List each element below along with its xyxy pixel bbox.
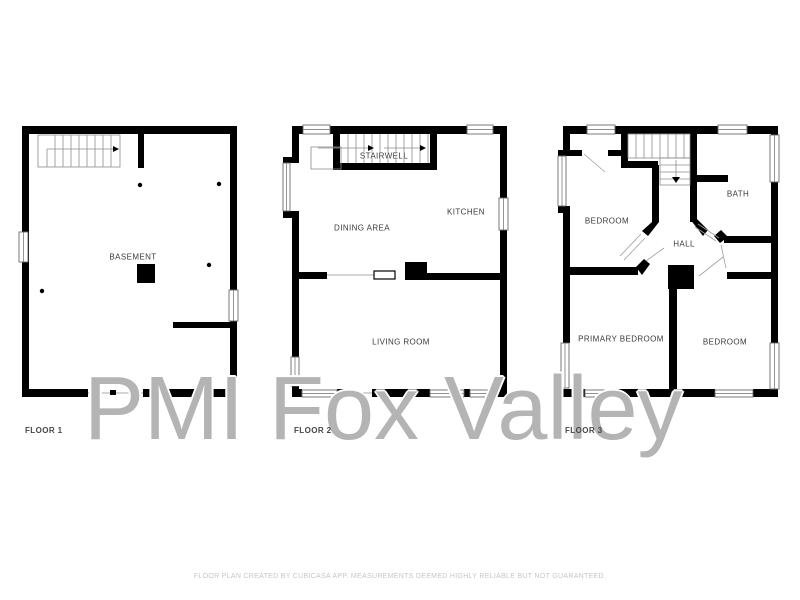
- f1-post: [138, 183, 142, 187]
- f3-stair-wall-right: [690, 127, 697, 222]
- f1-wall-bottom-left: [22, 389, 88, 397]
- f3-bath-wall-stub: [697, 175, 728, 182]
- f1-furnace: [137, 264, 155, 283]
- f1-post: [40, 289, 44, 293]
- f1-post: [207, 263, 211, 267]
- room-label-hall: HALL: [673, 240, 695, 249]
- footer-disclaimer: FLOOR PLAN CREATED BY CUBICASA APP. MEAS…: [0, 573, 800, 580]
- f3-primary-north-wall: [570, 267, 638, 275]
- room-label-living-room: LIVING ROOM: [372, 338, 430, 347]
- f1-interior-wall-stub: [138, 133, 144, 168]
- f3-window-left-upper: [558, 156, 566, 206]
- f2-wall-jog-top: [283, 157, 299, 163]
- room-label-dining-area: DINING AREA: [334, 224, 390, 233]
- f3-closet-south-wall: [727, 272, 772, 279]
- floor-plan-drawing: [0, 0, 800, 600]
- f1-window-right: [229, 290, 238, 321]
- f3-window-top-2: [718, 125, 747, 134]
- f2-window-top-2: [467, 125, 493, 134]
- f3-window-right-lower: [770, 343, 779, 389]
- f1-stairs-arrow: [113, 146, 119, 152]
- room-label-bath: BATH: [727, 190, 749, 199]
- room-label-basement: BASEMENT: [109, 253, 156, 262]
- floor2-plan: [283, 125, 508, 397]
- floor1-plan: [19, 126, 238, 397]
- room-label-bedroom-1: BEDROOM: [585, 217, 629, 226]
- f3-wall-bottom: [753, 389, 778, 397]
- f3-bedroom-north-wall: [558, 150, 582, 156]
- f2-window-top-1: [303, 125, 330, 134]
- f3-wall-left-mid: [563, 213, 570, 343]
- room-label-bedroom-2: BEDROOM: [703, 338, 747, 347]
- f3-wall-jog: [558, 206, 570, 213]
- f3-angled-wall-4: [636, 259, 650, 275]
- f3-stairs-down-arrow: [672, 177, 680, 183]
- f1-stairs: [38, 135, 120, 167]
- f2-chimney: [405, 262, 427, 280]
- f2-stairs-arrow-2: [420, 145, 426, 151]
- f1-wall-top: [22, 126, 237, 134]
- floor3-label: FLOOR 3: [565, 426, 602, 435]
- floor2-label: FLOOR 2: [294, 426, 331, 435]
- f2-window-left-upper: [283, 163, 290, 211]
- room-label-kitchen: KITCHEN: [447, 208, 485, 217]
- floor-plan-page: PMI Fox Valley BASEMENT STAIRWELL DINING…: [0, 0, 800, 600]
- f3-hall-wall-left: [652, 165, 659, 222]
- f2-divider-wall: [299, 262, 502, 280]
- floor1-label: FLOOR 1: [25, 426, 62, 435]
- f1-window-left: [19, 232, 28, 262]
- f2-wall-right: [500, 126, 507, 397]
- room-label-stairwell: STAIRWELL: [360, 152, 408, 161]
- f3-window-top-1: [587, 125, 615, 134]
- f1-wall-right: [230, 126, 237, 397]
- f3-bath-south-wall: [724, 236, 772, 243]
- f3-bedroom-north-wall-2: [608, 150, 622, 156]
- f3-window-bottom-2: [715, 390, 753, 397]
- f2-stairs-arrow-1: [368, 145, 374, 151]
- f3-angled-wall-1: [642, 222, 659, 236]
- f2-door-panel: [374, 271, 395, 279]
- watermark: PMI Fox Valley: [84, 364, 683, 454]
- f3-window-right-upper: [770, 135, 779, 182]
- f3-chimney: [668, 265, 694, 289]
- room-label-primary-bedroom: PRIMARY BEDROOM: [578, 335, 664, 344]
- f2-window-right: [499, 198, 508, 230]
- f1-interior-wall: [173, 322, 237, 328]
- floor3-plan: [558, 125, 779, 397]
- f1-post: [217, 182, 221, 186]
- f2-wall-jog-bottom: [283, 211, 299, 218]
